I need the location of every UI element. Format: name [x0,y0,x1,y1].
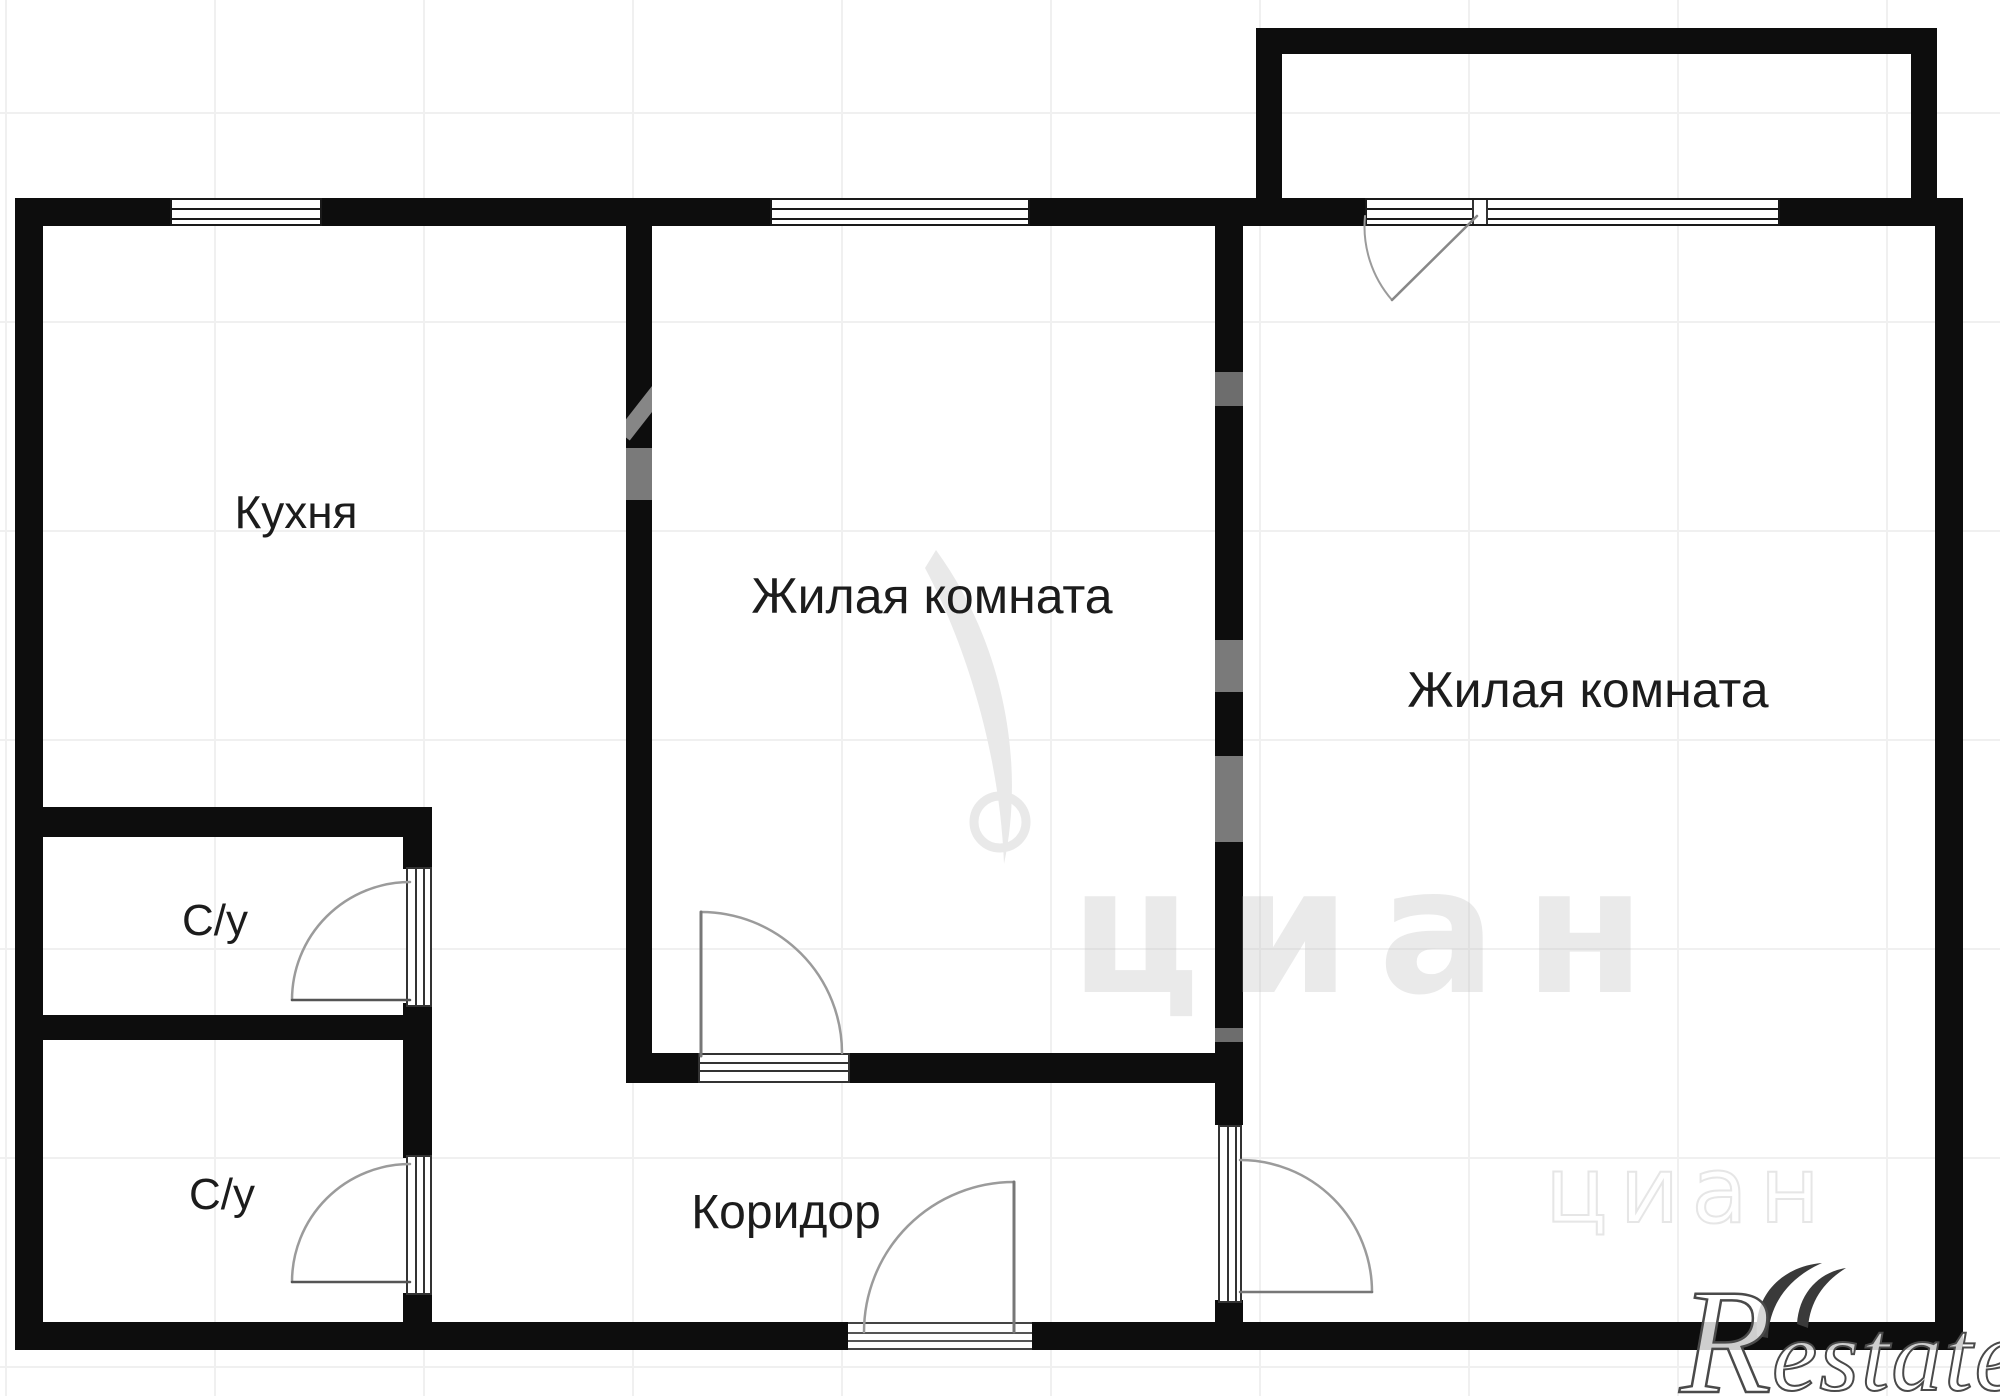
room-label-corridor: Коридор [636,1183,936,1243]
cian-watermark: циан циан [617,372,1832,1244]
balcony-door-leaf [1392,216,1477,300]
watermark-wall-patch [1215,1028,1243,1042]
watermark-wall-patch [626,448,652,500]
watermark-wall-patch [1215,756,1243,842]
cian-watermark-text: циан [1070,831,1673,1034]
room-label-living-1: Жилая комната [732,566,1132,626]
floor-plan: циан циан R [0,0,2000,1396]
restate-logo-text: estate [1772,1300,2000,1396]
restate-logo: R estate [1679,1259,2000,1396]
watermark-wall-patch [1215,640,1243,692]
watermark-wall-streak [617,375,673,440]
room-label-living-2: Жилая комната [1388,660,1788,720]
room-label-bathroom-1: С/у [65,891,365,951]
door-swings [292,216,1477,1332]
living1-door-arc [701,912,842,1053]
restate-logo-initial: R [1679,1259,1772,1396]
room-label-kitchen: Кухня [146,482,446,542]
room-label-bathroom-2: С/у [72,1165,372,1225]
watermark-wall-patch [1215,372,1243,406]
cian-watermark-text-small: циан [1545,1137,1832,1244]
living2-door-arc [1240,1160,1372,1292]
balcony-door-arc [1365,216,1392,300]
